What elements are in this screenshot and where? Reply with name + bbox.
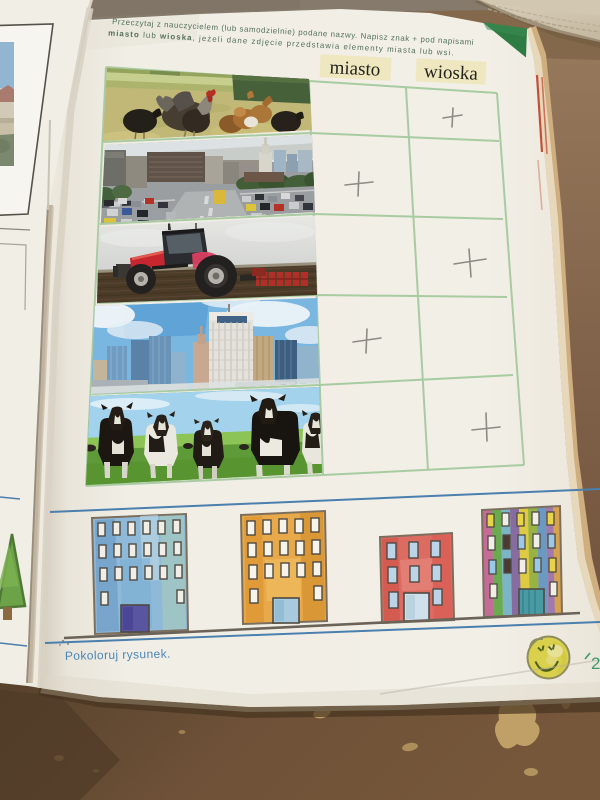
svg-text:miasto: miasto [329,57,381,80]
svg-text:Pokoloruj rysunek.: Pokoloruj rysunek. [65,647,171,663]
svg-text:2: 2 [591,654,600,673]
svg-text:wioska: wioska [424,61,479,85]
